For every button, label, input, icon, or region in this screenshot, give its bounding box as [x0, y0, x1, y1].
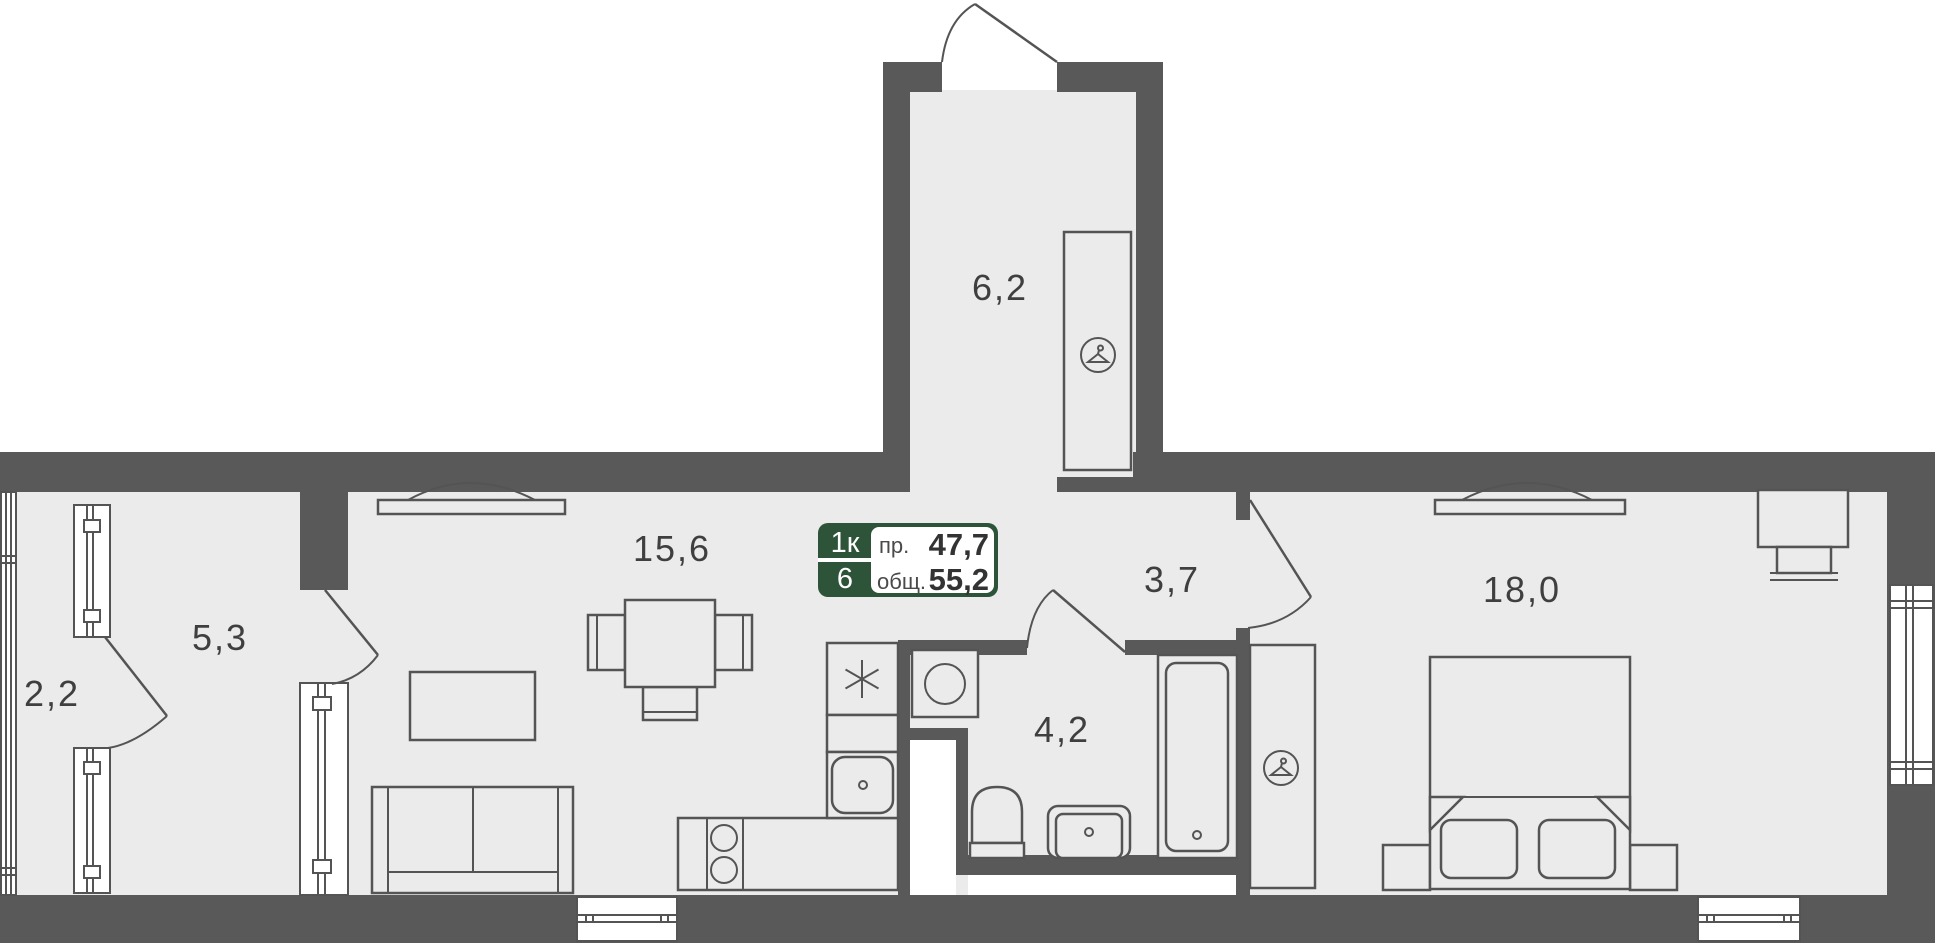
hall-wardrobe	[1064, 232, 1131, 470]
bottom-window-living	[577, 897, 677, 941]
badge-floor-number: 6	[837, 563, 853, 595]
room-label-inner-room: 5,3	[192, 617, 248, 658]
nightstand-left	[1383, 845, 1430, 890]
right-wall-window	[1890, 585, 1933, 785]
sofa	[372, 787, 573, 893]
room-label-bathroom: 4,2	[1034, 709, 1090, 750]
room-label-living-kitchen: 15,6	[633, 528, 711, 569]
washing-machine	[912, 650, 978, 717]
bed	[1430, 657, 1630, 889]
window-partition-lower	[74, 748, 110, 893]
window-partition-upper	[74, 505, 110, 637]
vanity-sink	[1048, 806, 1130, 858]
balcony-glazing	[1, 492, 16, 895]
entry-door	[942, 4, 1057, 62]
badge-rooms-count: 1к	[831, 527, 860, 559]
bedroom-wardrobe	[1250, 645, 1315, 888]
room-label-balcony: 2,2	[24, 673, 80, 714]
badge-total-area-value: 55,2	[929, 562, 989, 597]
badge-total-area-label: общ.	[877, 569, 926, 594]
badge-living-area-value: 47,7	[929, 527, 989, 562]
floor-plan-canvas: 6,2 15,6 3,7 18,0 5,3 2,2 4,2 1к 6 пр. 4…	[0, 0, 1935, 943]
toilet	[970, 787, 1024, 858]
room-label-bedroom: 18,0	[1483, 569, 1561, 610]
nightstand-right	[1630, 845, 1677, 890]
room-label-entry-hall: 6,2	[972, 267, 1028, 308]
floor-plan-svg: 6,2 15,6 3,7 18,0 5,3 2,2 4,2 1к 6 пр. 4…	[0, 0, 1935, 943]
bathtub	[1158, 655, 1237, 858]
coffee-table	[410, 672, 535, 740]
kitchen-sink	[827, 752, 898, 818]
window-partition-inner	[300, 683, 348, 895]
bottom-window-bedroom	[1698, 897, 1800, 941]
room-label-corridor: 3,7	[1144, 559, 1200, 600]
badge-living-area-label: пр.	[879, 533, 909, 558]
apartment-info-badge: 1к 6 пр. 47,7 общ. 55,2	[818, 523, 998, 597]
